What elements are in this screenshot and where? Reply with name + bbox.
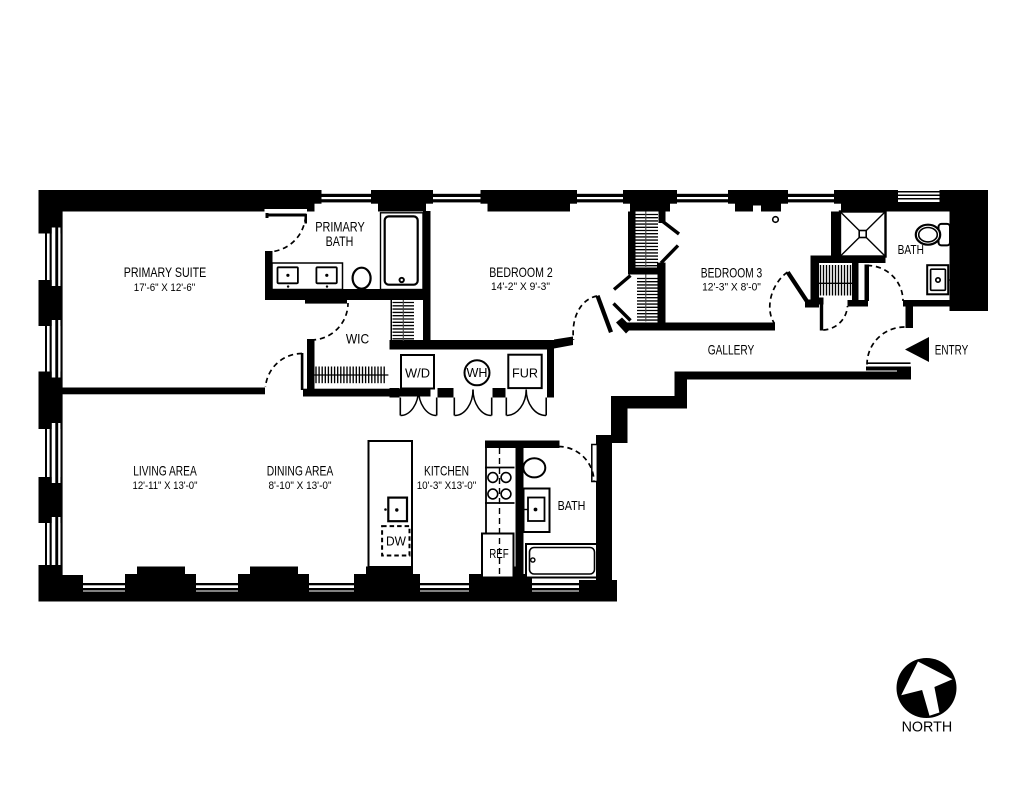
svg-text:12'-3" X 8'-0": 12'-3" X 8'-0" <box>702 282 761 294</box>
svg-text:BEDROOM 3: BEDROOM 3 <box>701 266 763 281</box>
svg-text:BATH: BATH <box>558 498 586 513</box>
svg-text:12'-11" X 13'-0": 12'-11" X 13'-0" <box>133 480 198 492</box>
svg-text:FUR: FUR <box>512 366 538 381</box>
svg-text:BATH: BATH <box>898 242 924 257</box>
svg-text:10'-3" X13'-0": 10'-3" X13'-0" <box>417 480 477 492</box>
svg-text:WIC: WIC <box>346 332 369 347</box>
svg-text:BATH: BATH <box>326 234 354 249</box>
svg-text:WH: WH <box>467 365 488 380</box>
svg-text:LIVING AREA: LIVING AREA <box>133 464 197 479</box>
svg-text:ENTRY: ENTRY <box>935 343 969 358</box>
svg-text:DINING AREA: DINING AREA <box>267 464 334 479</box>
svg-text:KITCHEN: KITCHEN <box>424 464 469 479</box>
svg-text:PRIMARY SUITE: PRIMARY SUITE <box>124 265 207 280</box>
svg-text:NORTH: NORTH <box>902 720 953 736</box>
svg-text:REF: REF <box>489 546 509 561</box>
svg-text:PRIMARY: PRIMARY <box>315 220 365 235</box>
svg-text:DW: DW <box>386 534 407 549</box>
svg-text:BEDROOM 2: BEDROOM 2 <box>489 265 553 280</box>
svg-text:8'-10" X 13'-0": 8'-10" X 13'-0" <box>269 480 332 492</box>
svg-text:14'-2" X 9'-3": 14'-2" X 9'-3" <box>491 281 550 293</box>
svg-text:GALLERY: GALLERY <box>708 343 755 358</box>
svg-text:17'-6" X 12'-6": 17'-6" X 12'-6" <box>134 282 195 294</box>
svg-text:W/D: W/D <box>405 366 430 381</box>
